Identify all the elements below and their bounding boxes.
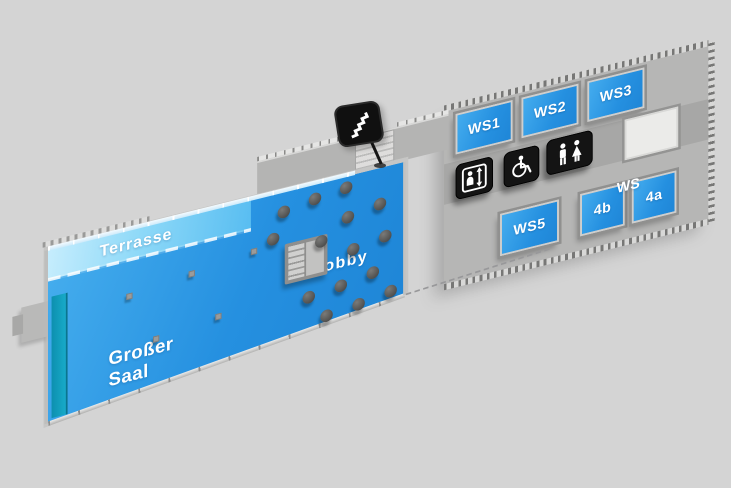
stairs-sign[interactable] xyxy=(333,100,385,149)
exterior-stair-block-lower xyxy=(12,314,23,336)
hall-floor xyxy=(48,162,404,422)
room-ws4b-label: 4b xyxy=(594,200,612,220)
exterior-stair-block xyxy=(21,301,48,343)
room-ws4a-label: 4a xyxy=(646,187,663,207)
room-ws2-label: WS2 xyxy=(534,99,566,123)
elevator-icon xyxy=(461,162,488,195)
stage-strip[interactable] xyxy=(52,293,68,418)
lobby-east-wall xyxy=(403,162,406,296)
wc-icon xyxy=(552,136,588,169)
wheelchair-icon xyxy=(509,151,534,182)
room-ws5-label: WS5 xyxy=(513,216,545,240)
room-ws3-label: WS3 xyxy=(600,83,632,107)
hall-west-wall xyxy=(44,250,48,424)
wing-east-wall xyxy=(708,41,714,222)
room-ws1-label: WS1 xyxy=(468,115,500,139)
floorplan-viewport: WS1 WS2 WS3 xyxy=(0,0,731,488)
stairs-icon xyxy=(341,107,377,142)
